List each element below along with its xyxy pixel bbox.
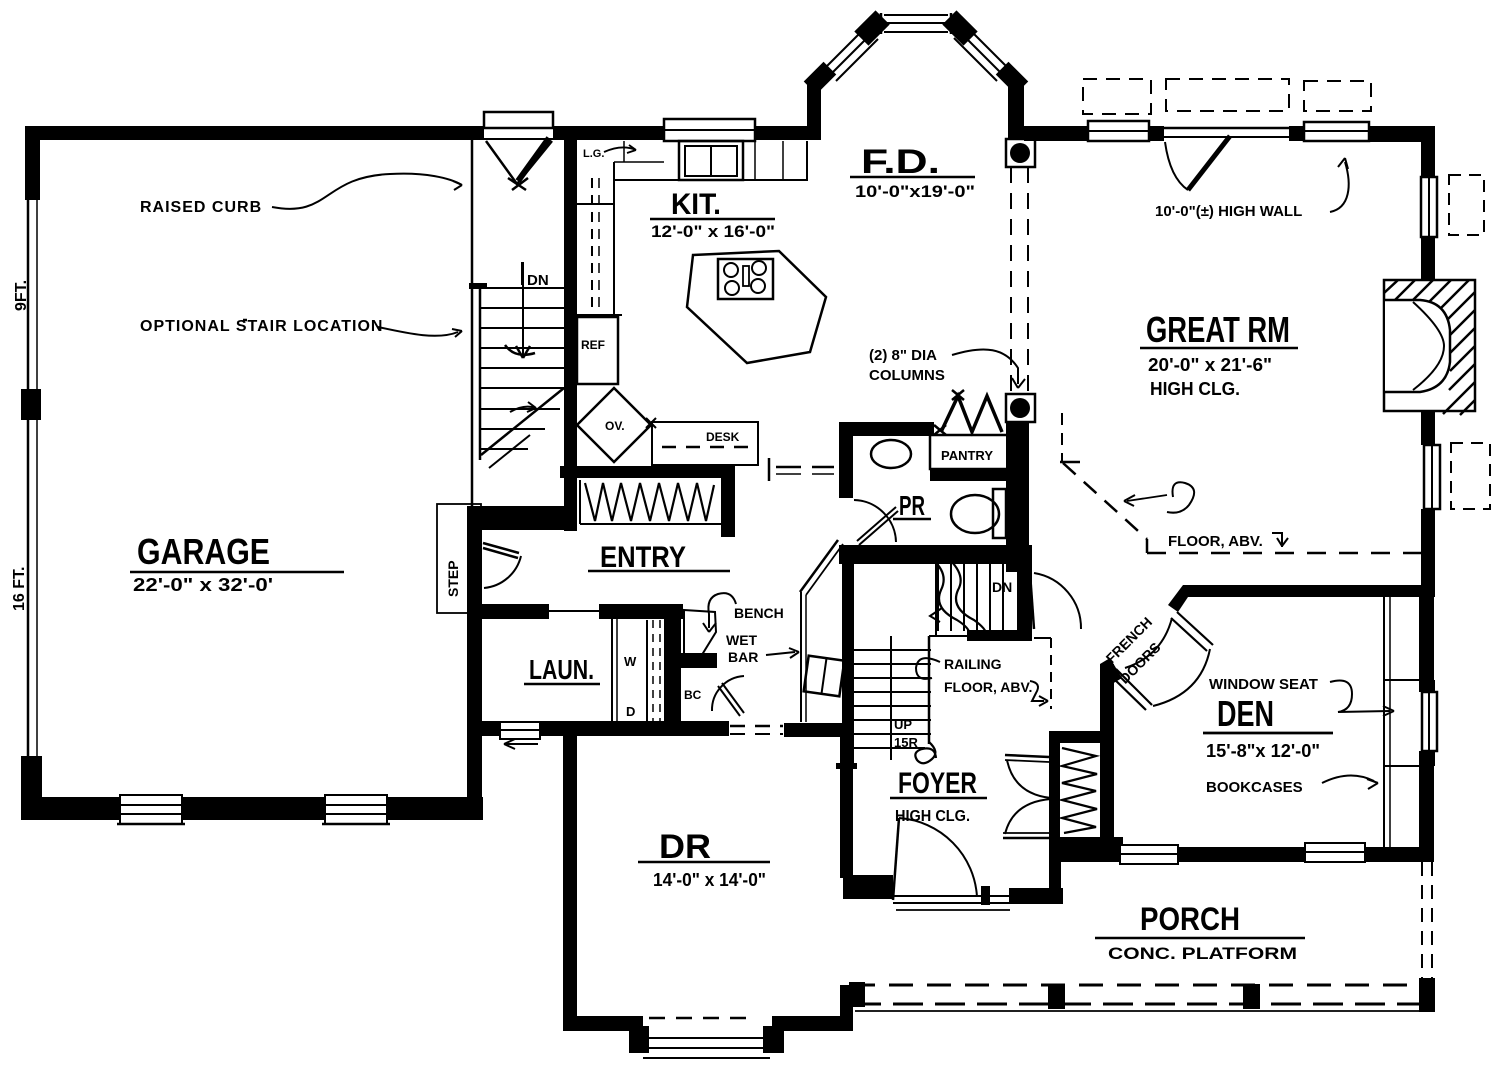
svg-text:16 FT.: 16 FT.: [11, 567, 28, 611]
svg-text:BAR: BAR: [728, 649, 758, 665]
svg-text:22'-0" x 32'-0': 22'-0" x 32'-0': [133, 575, 273, 595]
svg-text:RAISED CURB: RAISED CURB: [140, 199, 262, 216]
svg-text:20'-0" x 21'-6": 20'-0" x 21'-6": [1148, 355, 1272, 375]
svg-text:DESK: DESK: [706, 430, 740, 444]
svg-text:HIGH CLG.: HIGH CLG.: [1150, 379, 1240, 399]
svg-text:BOOKCASES: BOOKCASES: [1206, 779, 1303, 796]
svg-text:PANTRY: PANTRY: [941, 448, 993, 463]
svg-text:(2) 8" DIA: (2) 8" DIA: [869, 347, 937, 364]
svg-text:CONC. PLATFORM: CONC. PLATFORM: [1108, 944, 1297, 963]
svg-text:BC: BC: [684, 688, 702, 702]
svg-text:FLOOR, ABV.: FLOOR, ABV.: [944, 679, 1032, 695]
svg-text:ENTRY: ENTRY: [600, 541, 686, 574]
svg-text:STEP: STEP: [445, 560, 461, 597]
svg-text:GREAT RM: GREAT RM: [1146, 309, 1290, 350]
svg-text:DN: DN: [527, 272, 549, 289]
svg-text:PR: PR: [899, 490, 925, 521]
svg-text:PORCH: PORCH: [1140, 901, 1240, 937]
svg-text:9FT.: 9FT.: [13, 280, 30, 311]
svg-text:L.G.: L.G.: [583, 148, 604, 160]
svg-text:HIGH CLG.: HIGH CLG.: [895, 808, 970, 825]
svg-text:REF: REF: [581, 338, 605, 352]
svg-text:12'-0" x 16'-0": 12'-0" x 16'-0": [651, 222, 775, 241]
svg-text:FLOOR, ABV.: FLOOR, ABV.: [1168, 533, 1263, 550]
svg-text:10'-0"x19'-0": 10'-0"x19'-0": [855, 182, 975, 201]
svg-text:DEN: DEN: [1217, 693, 1274, 734]
svg-text:10'-0"(±) HIGH WALL: 10'-0"(±) HIGH WALL: [1155, 203, 1302, 220]
svg-text:GARAGE: GARAGE: [137, 531, 270, 572]
svg-text:WET: WET: [726, 632, 758, 648]
svg-text:15R: 15R: [894, 735, 918, 750]
svg-text:COLUMNS: COLUMNS: [869, 367, 945, 384]
svg-text:BENCH: BENCH: [734, 605, 784, 621]
svg-text:D: D: [626, 704, 635, 719]
svg-text:DN: DN: [992, 579, 1012, 595]
svg-text:F.D.: F.D.: [861, 143, 940, 181]
svg-text:OPTIONAL STAIR LOCATION: OPTIONAL STAIR LOCATION: [140, 318, 383, 335]
svg-text:15'-8"x 12'-0": 15'-8"x 12'-0": [1206, 741, 1320, 761]
svg-text:DR: DR: [659, 828, 711, 866]
svg-text:WINDOW SEAT: WINDOW SEAT: [1209, 676, 1318, 693]
svg-text:LAUN.: LAUN.: [529, 654, 594, 685]
svg-text:RAILING: RAILING: [944, 656, 1002, 672]
svg-text:UP: UP: [894, 717, 912, 732]
svg-text:FOYER: FOYER: [898, 767, 977, 800]
svg-text:KIT.: KIT.: [671, 188, 721, 221]
svg-text:OV.: OV.: [605, 419, 625, 433]
svg-text:W: W: [624, 654, 637, 669]
svg-text:14'-0" x 14'-0": 14'-0" x 14'-0": [653, 870, 766, 890]
